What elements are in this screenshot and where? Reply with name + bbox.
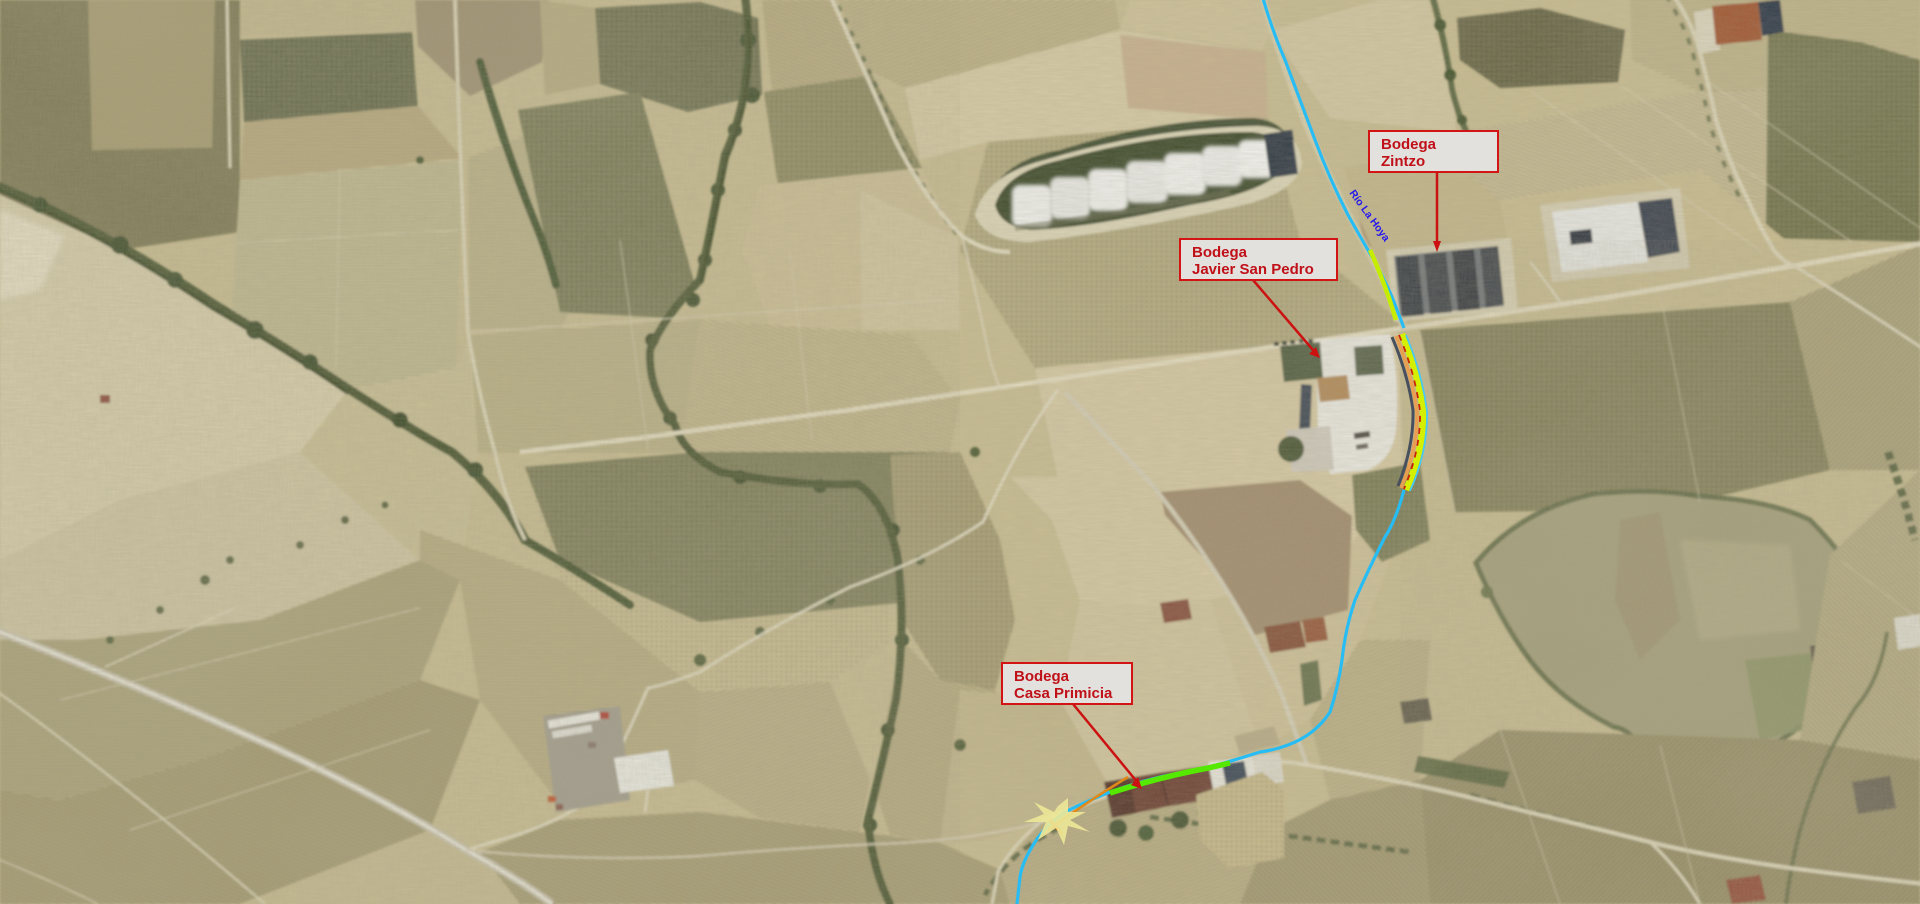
svg-text:Zintzo: Zintzo <box>1381 153 1425 170</box>
svg-text:Bodega: Bodega <box>1381 136 1437 153</box>
svg-text:Javier San Pedro: Javier San Pedro <box>1192 261 1314 278</box>
svg-text:Casa Primicia: Casa Primicia <box>1014 685 1113 702</box>
svg-text:Bodega: Bodega <box>1014 668 1070 685</box>
svg-text:Bodega: Bodega <box>1192 244 1248 261</box>
